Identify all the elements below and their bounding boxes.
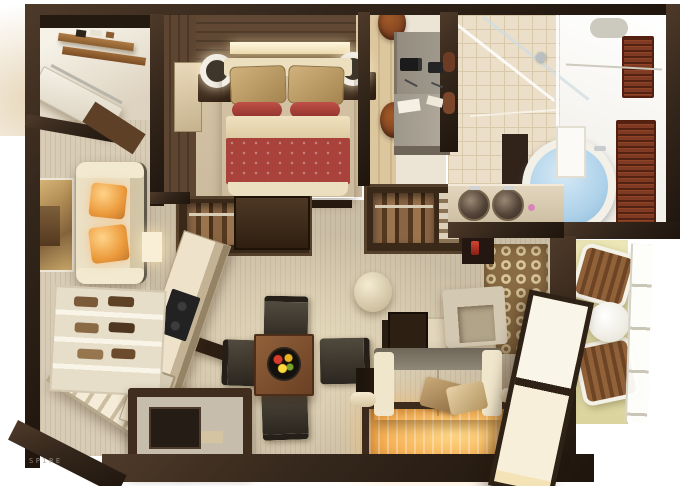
- shoes: [108, 322, 134, 333]
- left-sofa: [76, 162, 144, 284]
- sofa: [374, 348, 502, 420]
- floor-plan-render: SPIRE: [0, 0, 680, 486]
- coffee-table-recess: [149, 407, 201, 449]
- watermark: SPIRE: [29, 457, 63, 465]
- left-sofa-arm-top: [76, 162, 144, 178]
- wardrobe-clothes: [373, 193, 435, 243]
- bed-red-blanket: [226, 138, 350, 184]
- coffee-table-tray: [201, 431, 223, 443]
- orange-pillow-2: [88, 224, 130, 264]
- ottoman: [354, 272, 392, 312]
- armchair-seat: [457, 305, 495, 343]
- double-bed: [222, 58, 354, 198]
- shelf-item-dark: [76, 29, 87, 37]
- wall-closet-stub: [150, 192, 190, 204]
- desk-phone-2: [428, 62, 443, 73]
- art-center-block: [40, 206, 60, 246]
- left-sofa-back: [130, 162, 147, 284]
- flower-accent: [528, 204, 535, 211]
- orange-pillow-1: [88, 182, 127, 220]
- tap-right: [504, 186, 514, 190]
- sink-right: [492, 189, 524, 221]
- shoes: [108, 296, 134, 307]
- sink-left: [458, 189, 490, 221]
- shoes: [111, 348, 135, 359]
- desk-phone-1: [400, 58, 422, 71]
- ceiling-vent: [590, 18, 628, 38]
- kitchen-dark-unit: [234, 196, 310, 250]
- bed-sheet-fold: [226, 116, 350, 140]
- shower-head: [536, 52, 546, 62]
- nook-wall-shadow: [40, 15, 152, 28]
- fire-extinguisher: [471, 241, 479, 255]
- bed-pillow-left: [229, 65, 286, 105]
- cove-light: [230, 42, 350, 54]
- bed-foot-cream: [228, 182, 348, 196]
- wall-office-bathroom: [440, 12, 458, 152]
- tap-left: [470, 186, 480, 190]
- shoes: [74, 322, 98, 333]
- fruit-bowl: [267, 347, 301, 381]
- hanging-towel-2: [443, 92, 455, 114]
- glass-divider: [556, 15, 559, 133]
- wall-top: [25, 4, 680, 15]
- bed-pillow-right: [287, 65, 344, 105]
- wall-lamp-panel: [142, 232, 162, 262]
- dining-chair-bottom: [261, 389, 309, 441]
- wardrobe-rail: [375, 205, 433, 208]
- wall-left: [25, 4, 40, 468]
- louver-panel-2: [616, 120, 656, 224]
- sofa-arm-left: [374, 352, 394, 416]
- shoes: [77, 348, 103, 359]
- wall-bedroom-left: [150, 14, 164, 206]
- wall-vanity-band: [448, 222, 564, 238]
- left-sofa-arm-bottom: [76, 268, 144, 284]
- balcony-table: [588, 302, 630, 342]
- wall-right-top: [666, 4, 680, 236]
- shoes: [74, 296, 98, 307]
- tub-tap: [594, 146, 606, 151]
- sofa-bolster-left: [350, 392, 376, 407]
- shoe-shelf: [49, 285, 166, 397]
- wall-bedroom-office: [358, 12, 370, 186]
- side-cabinet: [388, 312, 428, 350]
- hanging-towel-1: [443, 52, 455, 72]
- bathroom-cabinet: [556, 126, 586, 178]
- shelf-item-wood: [106, 31, 115, 38]
- armchair: [442, 286, 508, 348]
